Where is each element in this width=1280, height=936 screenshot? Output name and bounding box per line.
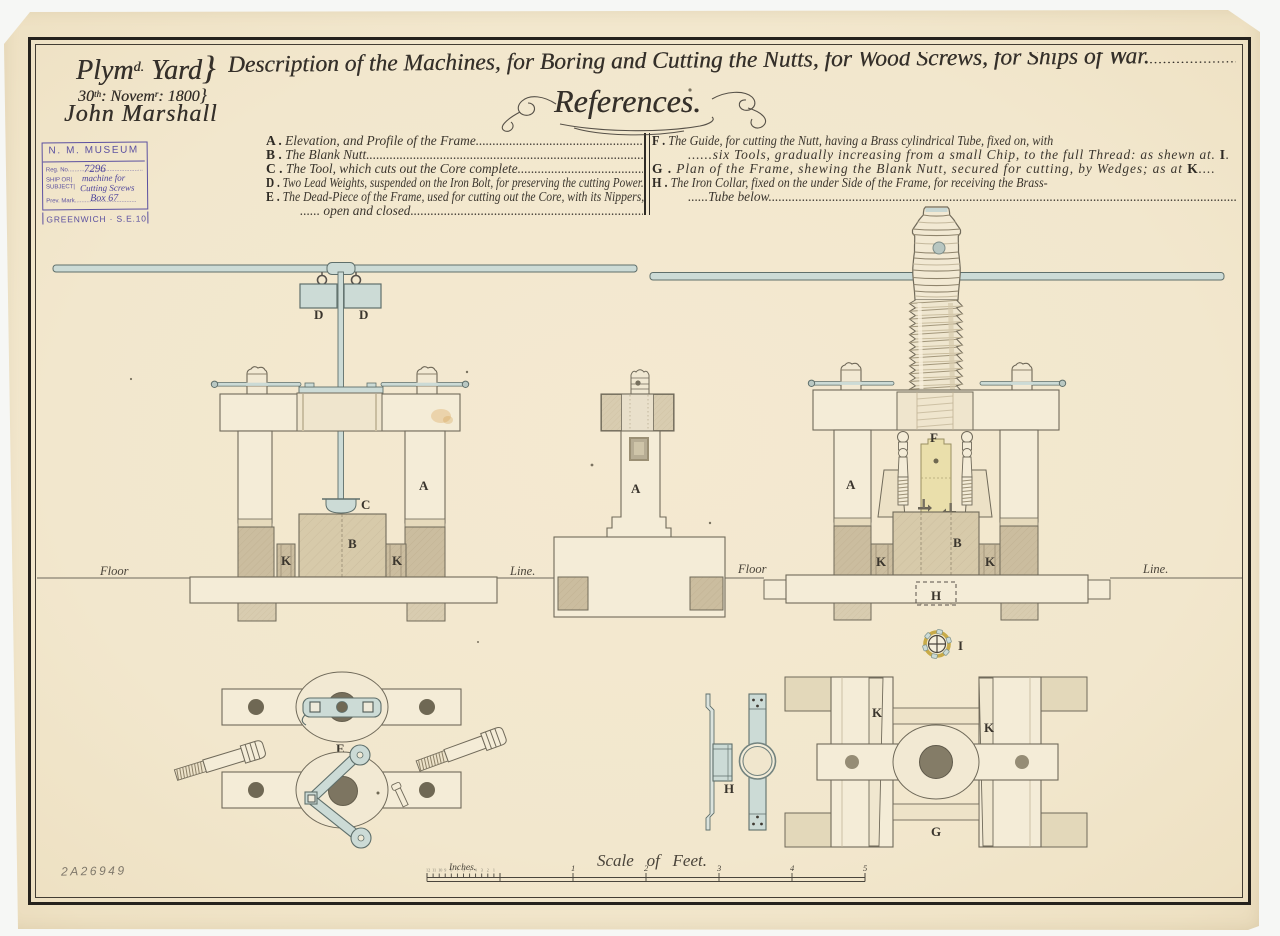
svg-text:I: I — [958, 638, 963, 653]
svg-text:12: 12 — [426, 868, 430, 873]
svg-text:D: D — [314, 307, 323, 322]
svg-text:K: K — [984, 720, 995, 735]
svg-text:2: 2 — [487, 868, 489, 873]
svg-text:7: 7 — [456, 868, 458, 873]
svg-text:B: B — [953, 535, 962, 550]
svg-text:1: 1 — [571, 863, 575, 873]
svg-text:4: 4 — [475, 868, 478, 873]
svg-text:H: H — [724, 781, 734, 796]
svg-text:K: K — [876, 554, 887, 569]
svg-text:F: F — [930, 430, 938, 445]
svg-text:A: A — [631, 481, 641, 496]
svg-text:5: 5 — [863, 863, 867, 873]
svg-text:4: 4 — [790, 863, 795, 873]
svg-text:11: 11 — [432, 868, 436, 873]
svg-text:A: A — [846, 477, 856, 492]
svg-text:K: K — [985, 554, 996, 569]
svg-text:D: D — [359, 307, 368, 322]
svg-text:10: 10 — [438, 868, 442, 873]
svg-text:3: 3 — [481, 868, 483, 873]
svg-text:6: 6 — [463, 868, 465, 873]
svg-text:B: B — [348, 536, 357, 551]
svg-text:Line.: Line. — [509, 564, 535, 578]
svg-text:9: 9 — [444, 868, 446, 873]
svg-text:A: A — [419, 478, 429, 493]
svg-text:Line.: Line. — [1142, 562, 1168, 576]
svg-text:8: 8 — [450, 868, 452, 873]
svg-text:G: G — [931, 824, 941, 839]
svg-text:3: 3 — [716, 863, 721, 873]
svg-text:Floor: Floor — [99, 564, 129, 578]
svg-text:Scale of Feet.: Scale of Feet. — [597, 851, 707, 870]
svg-text:K: K — [392, 553, 403, 568]
svg-text:K: K — [872, 705, 883, 720]
svg-text:1: 1 — [493, 868, 495, 873]
svg-text:K: K — [281, 553, 292, 568]
svg-text:Floor: Floor — [737, 562, 767, 576]
svg-text:C: C — [361, 497, 370, 512]
svg-text:5: 5 — [469, 868, 471, 873]
svg-text:H: H — [931, 588, 941, 603]
